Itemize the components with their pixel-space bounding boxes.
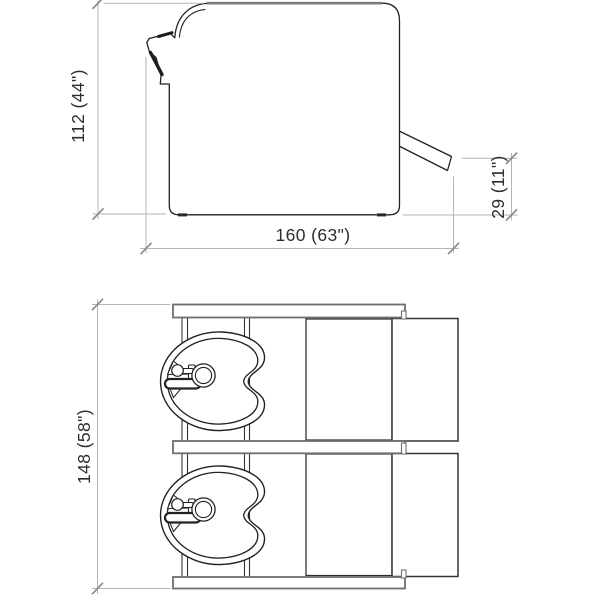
panel-tab-top [402, 311, 407, 319]
dim-footrest-height: 29 (11") [403, 153, 518, 221]
dimension-drawing: 112 (44") 160 (63") 29 (11") [0, 0, 600, 600]
panel-tab-bottom [402, 570, 407, 578]
legrest-section-unit-1 [392, 319, 458, 442]
technical-drawing-canvas: 112 (44") 160 (63") 29 (11") [0, 0, 600, 600]
panel-tab-middle [402, 443, 407, 454]
drain-inner-icon [195, 501, 211, 517]
dim-label-side-width: 160 (63") [276, 225, 351, 245]
unit-body-profile [147, 3, 400, 215]
mixer-knob-icon [172, 365, 184, 377]
seat-section-unit-2 [306, 454, 392, 576]
drain-inner-icon [195, 367, 211, 383]
shampoo-bowl-1 [161, 332, 265, 431]
legrest-section-unit-2 [392, 454, 458, 577]
plan-view [161, 305, 459, 589]
counter-panel-top [173, 305, 405, 318]
mixer-knob-icon [172, 499, 184, 511]
dim-label-plan-depth: 148 (58") [74, 409, 94, 484]
dim-label-side-height: 112 (44") [68, 69, 88, 143]
counter-panel-bottom [173, 577, 405, 589]
seat-section-unit-1 [306, 319, 392, 440]
footrest-bar [394, 129, 452, 171]
foot-glide-left [178, 213, 187, 216]
counter-panel-middle [173, 441, 405, 453]
shampoo-bowl-2 [161, 466, 265, 565]
side-view [147, 3, 452, 216]
foot-glide-right [377, 213, 386, 216]
dim-label-footrest-height: 29 (11") [488, 155, 508, 219]
dim-plan-depth: 148 (58") [74, 299, 171, 594]
